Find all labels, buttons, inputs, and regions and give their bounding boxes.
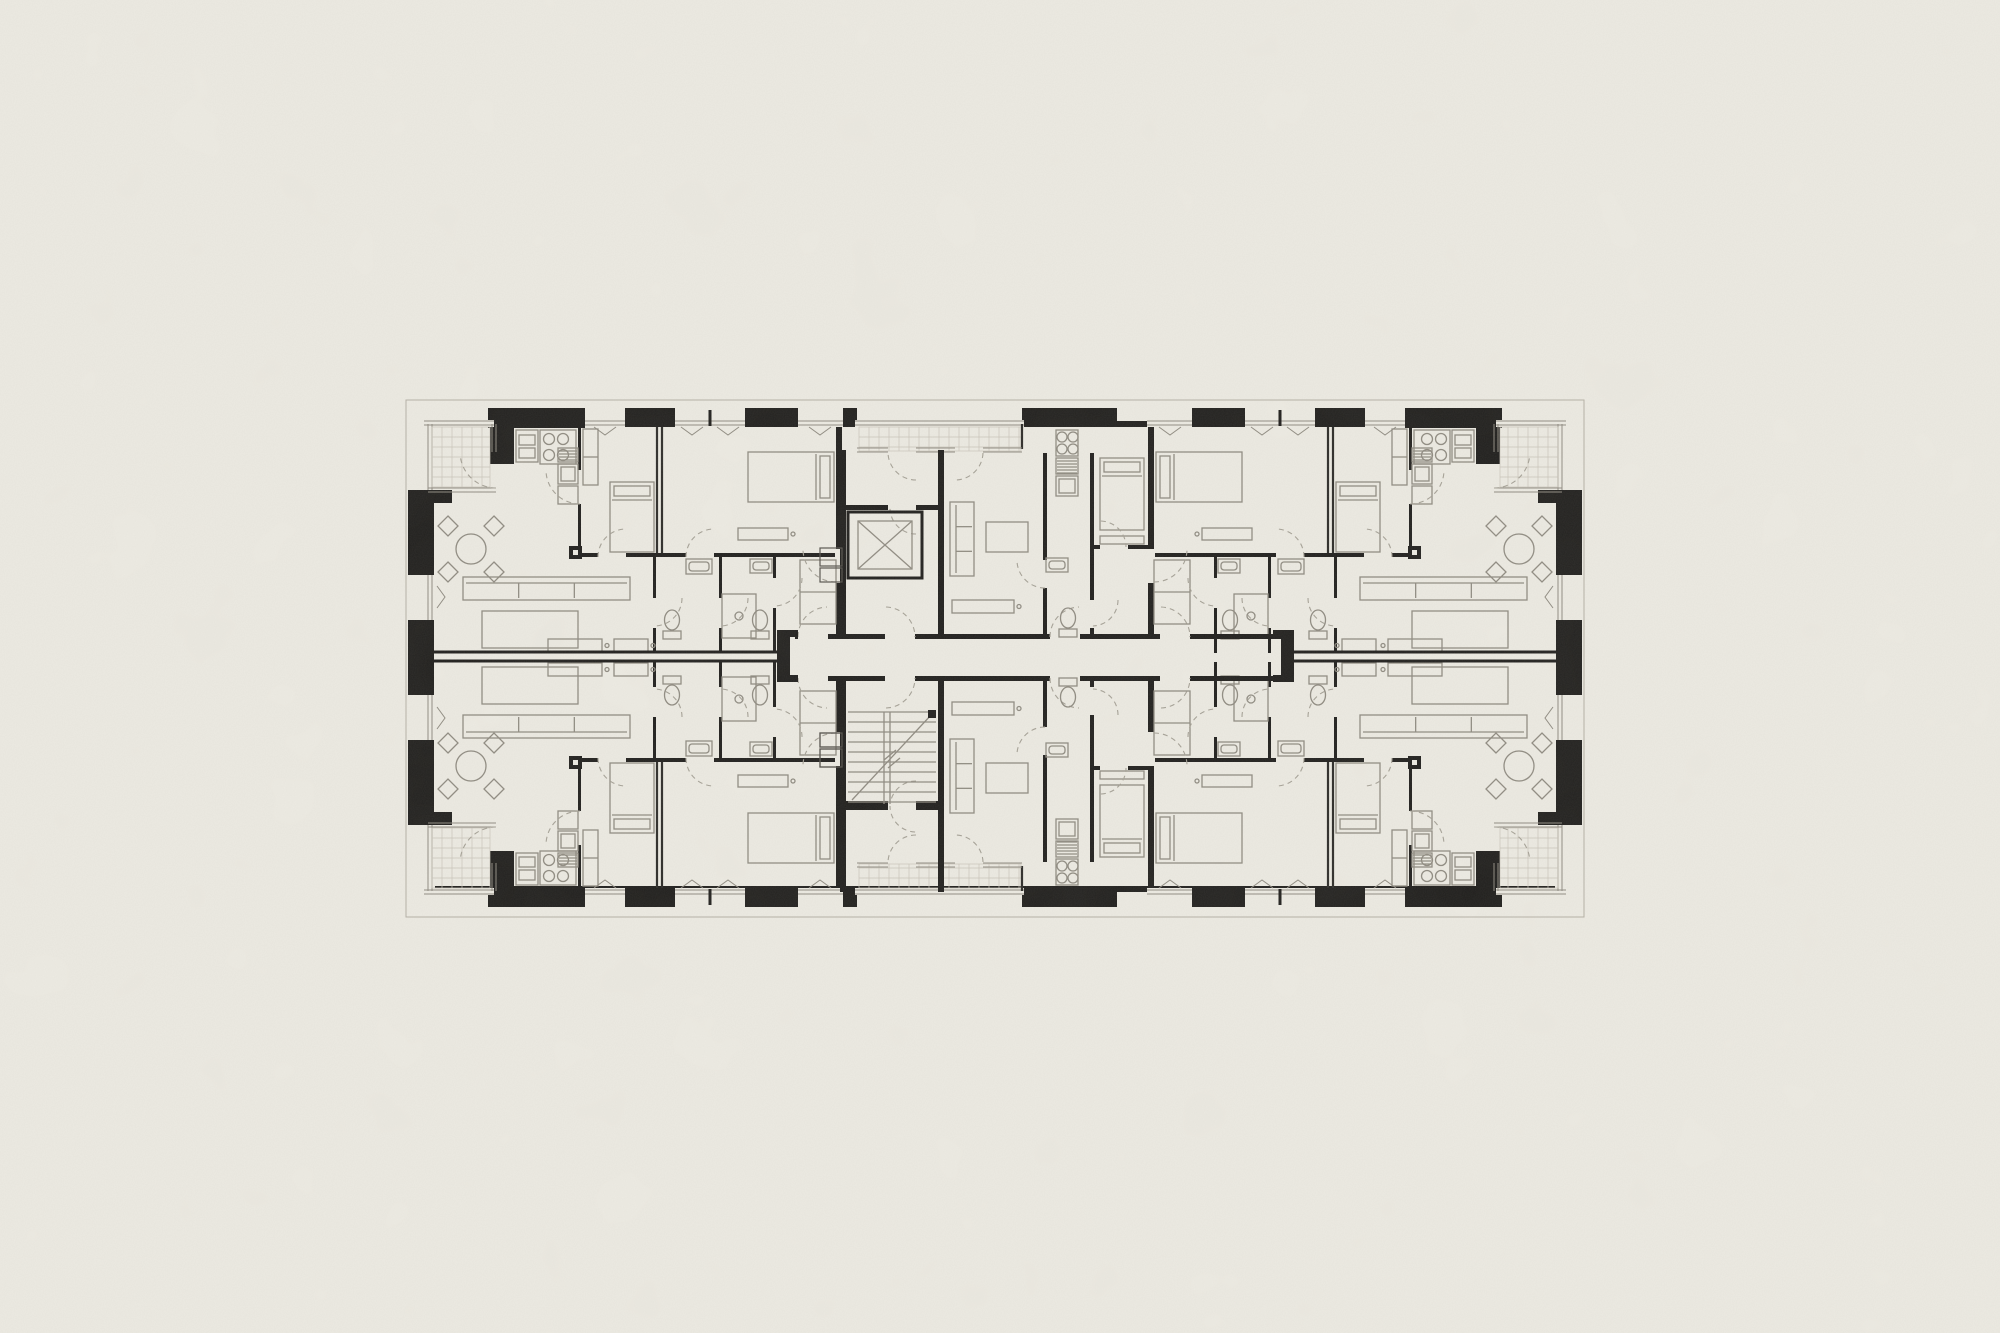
floor-plan-drawing	[0, 0, 2000, 1333]
paper-sheet	[0, 0, 2000, 1333]
paper-texture-mottle	[0, 0, 2000, 1333]
